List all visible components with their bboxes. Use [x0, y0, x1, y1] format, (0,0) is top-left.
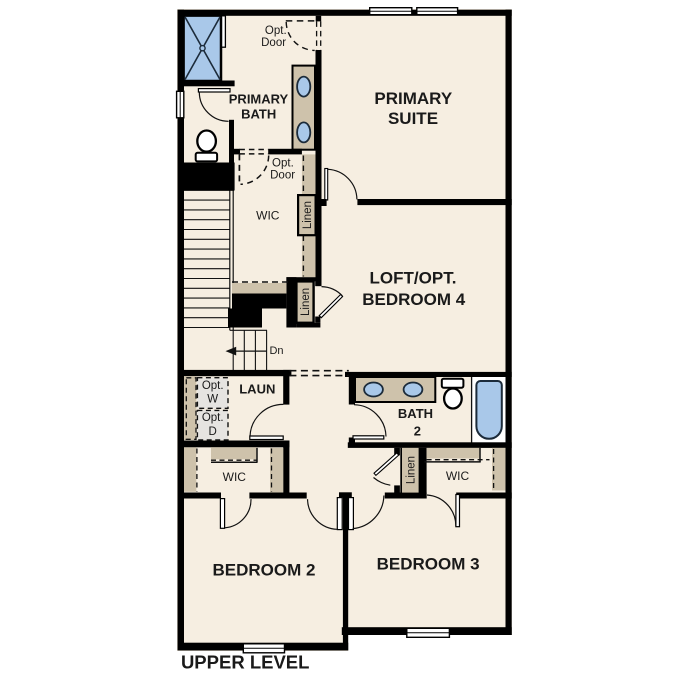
svg-text:Door: Door: [261, 37, 286, 49]
svg-text:Door: Door: [270, 170, 295, 182]
svg-text:WIC: WIC: [256, 208, 280, 222]
svg-text:Dn: Dn: [269, 345, 283, 357]
svg-text:BEDROOM 2: BEDROOM 2: [213, 561, 316, 580]
svg-text:BEDROOM 4: BEDROOM 4: [362, 290, 466, 309]
svg-text:LAUN: LAUN: [239, 382, 275, 397]
svg-text:Opt.: Opt.: [265, 25, 287, 37]
svg-text:WIC: WIC: [223, 470, 247, 484]
svg-text:BEDROOM 3: BEDROOM 3: [377, 554, 480, 573]
svg-text:UPPER LEVEL: UPPER LEVEL: [181, 651, 310, 672]
svg-text:2: 2: [414, 424, 421, 439]
svg-text:PRIMARY: PRIMARY: [229, 92, 289, 107]
svg-text:SUITE: SUITE: [388, 109, 438, 128]
svg-text:W: W: [207, 394, 218, 406]
svg-text:Linen: Linen: [302, 201, 314, 229]
svg-text:Opt.: Opt.: [202, 412, 224, 424]
svg-text:D: D: [209, 426, 217, 438]
svg-text:PRIMARY: PRIMARY: [374, 89, 452, 108]
svg-text:LOFT/OPT.: LOFT/OPT.: [370, 268, 457, 287]
svg-text:Linen: Linen: [300, 288, 312, 316]
svg-text:Opt.: Opt.: [272, 158, 294, 170]
svg-text:BATH: BATH: [241, 106, 276, 121]
svg-text:WIC: WIC: [446, 469, 470, 483]
svg-text:Opt.: Opt.: [202, 380, 224, 392]
svg-text:BATH: BATH: [398, 406, 433, 421]
svg-text:Linen: Linen: [405, 456, 417, 484]
